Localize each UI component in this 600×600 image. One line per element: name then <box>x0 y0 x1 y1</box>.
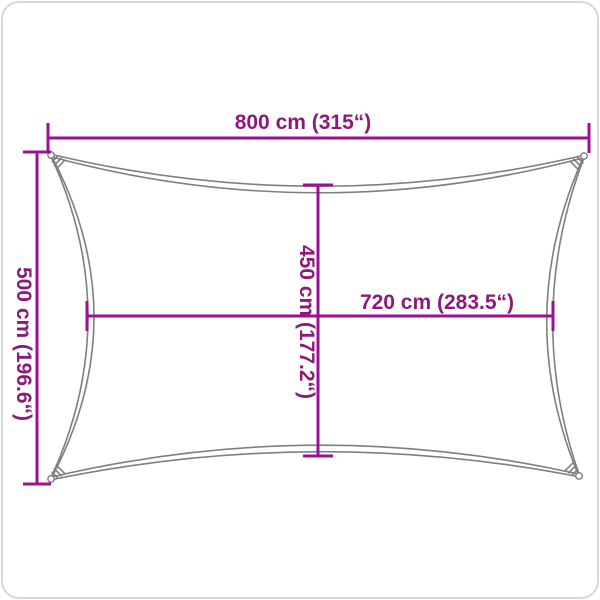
sail-edge-bottom-inner <box>52 445 578 477</box>
sail-edge-top-outer <box>50 154 585 186</box>
sail-edge-right-outer <box>553 155 585 477</box>
corner-grommet-bottom-right <box>565 462 585 482</box>
dimension-diagram: 800 cm (315“) 500 cm (196.6“) 450 cm (17… <box>0 0 600 600</box>
label-left-height: 500 cm (196.6“) <box>12 267 35 421</box>
corner-grommet-top-right <box>570 150 590 170</box>
product-dimension-image: 800 cm (315“) 500 cm (196.6“) 450 cm (17… <box>0 0 600 600</box>
corner-grommet-bottom-left <box>45 465 65 485</box>
label-top-width: 800 cm (315“) <box>235 111 372 134</box>
sail-edge-left-outer <box>50 154 88 480</box>
label-inner-height: 450 cm (177.2“) <box>295 245 318 399</box>
label-inner-width: 720 cm (283.5“) <box>360 291 514 314</box>
